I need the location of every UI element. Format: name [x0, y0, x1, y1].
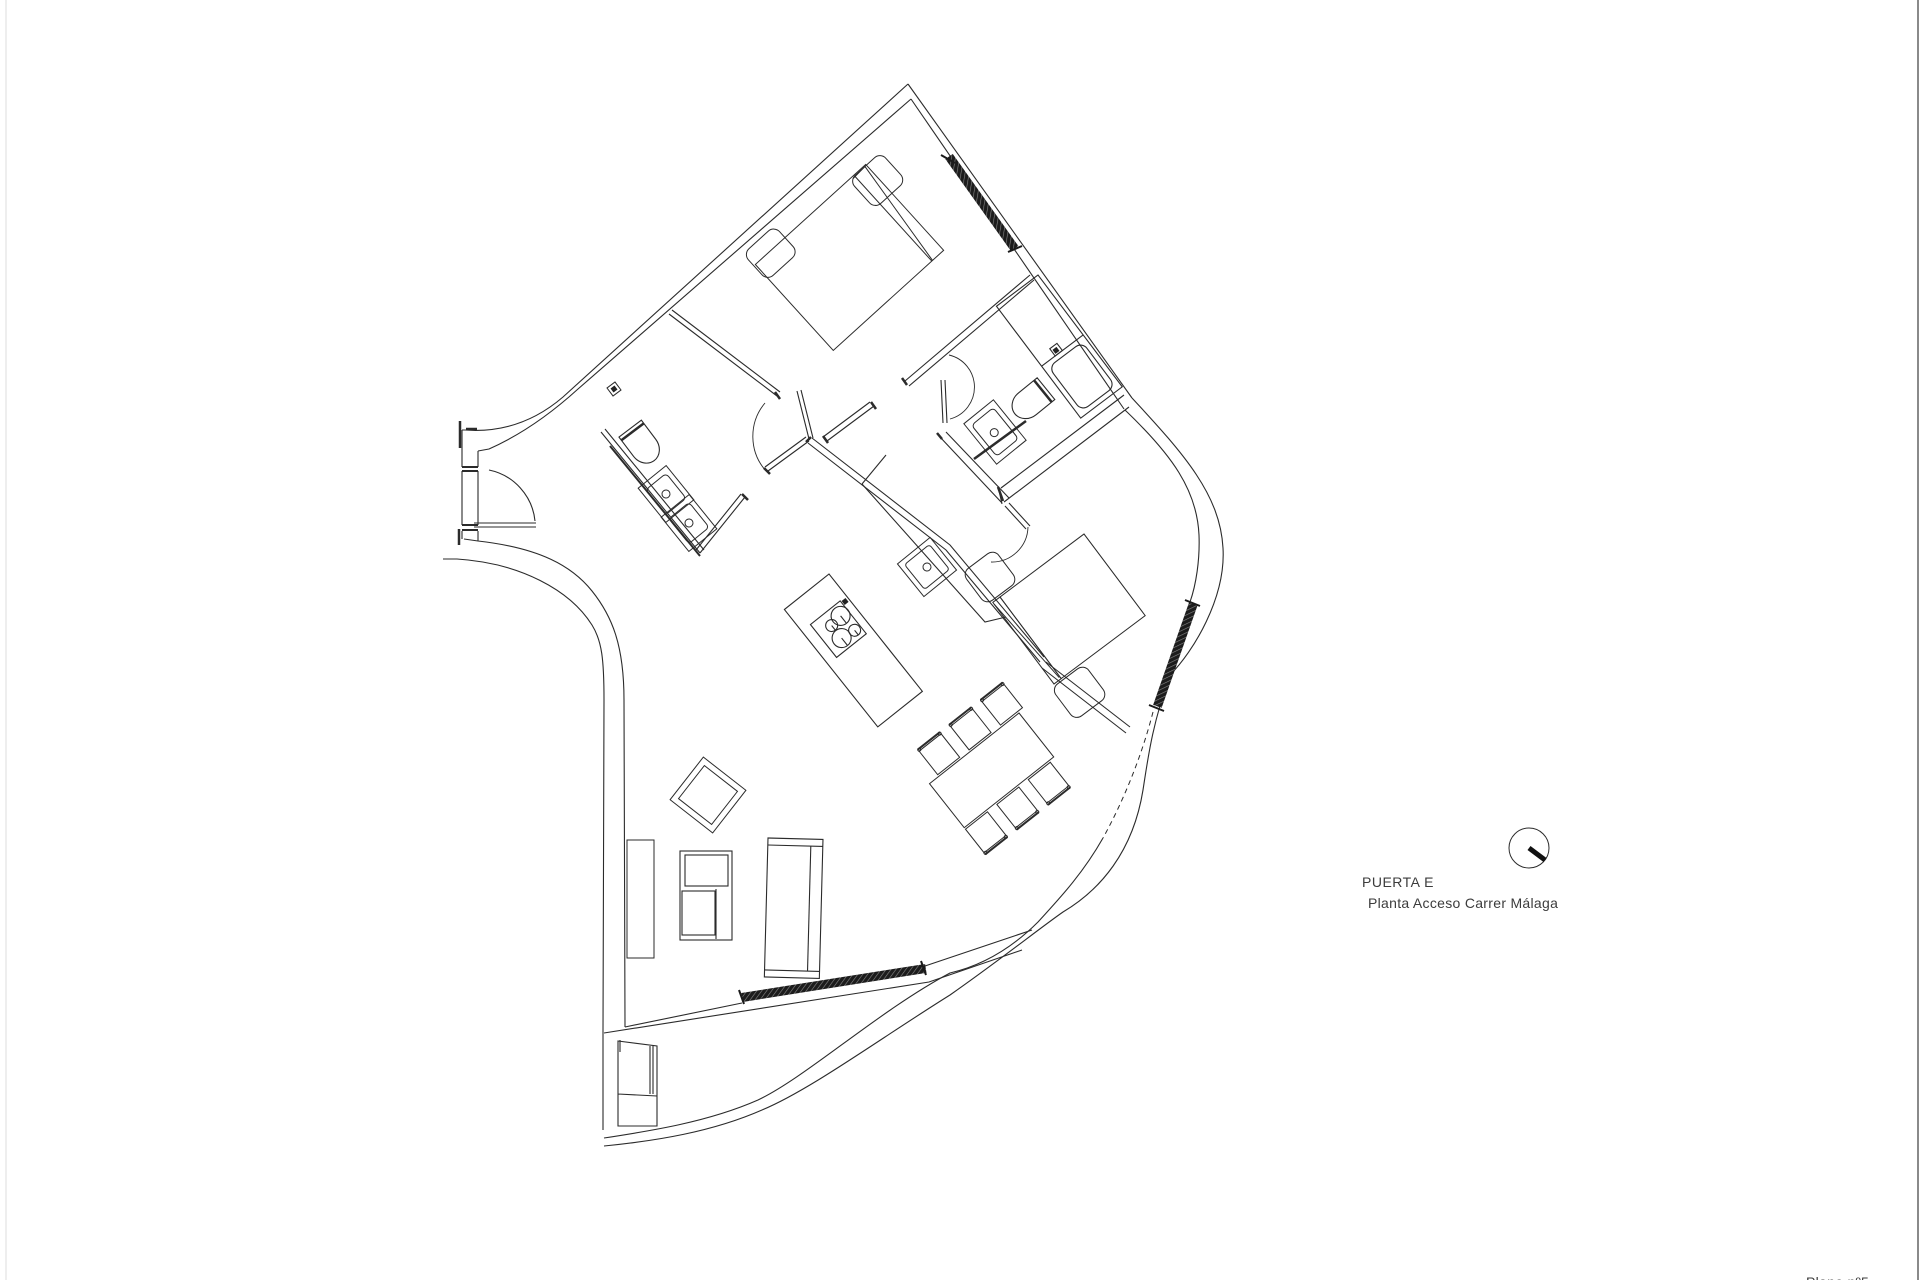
svg-text:PUERTA E: PUERTA E [1362, 874, 1434, 890]
svg-text:Planta Acceso Carrer Málaga: Planta Acceso Carrer Málaga [1368, 895, 1558, 911]
svg-text:Plano nº5: Plano nº5 [1806, 1274, 1869, 1280]
